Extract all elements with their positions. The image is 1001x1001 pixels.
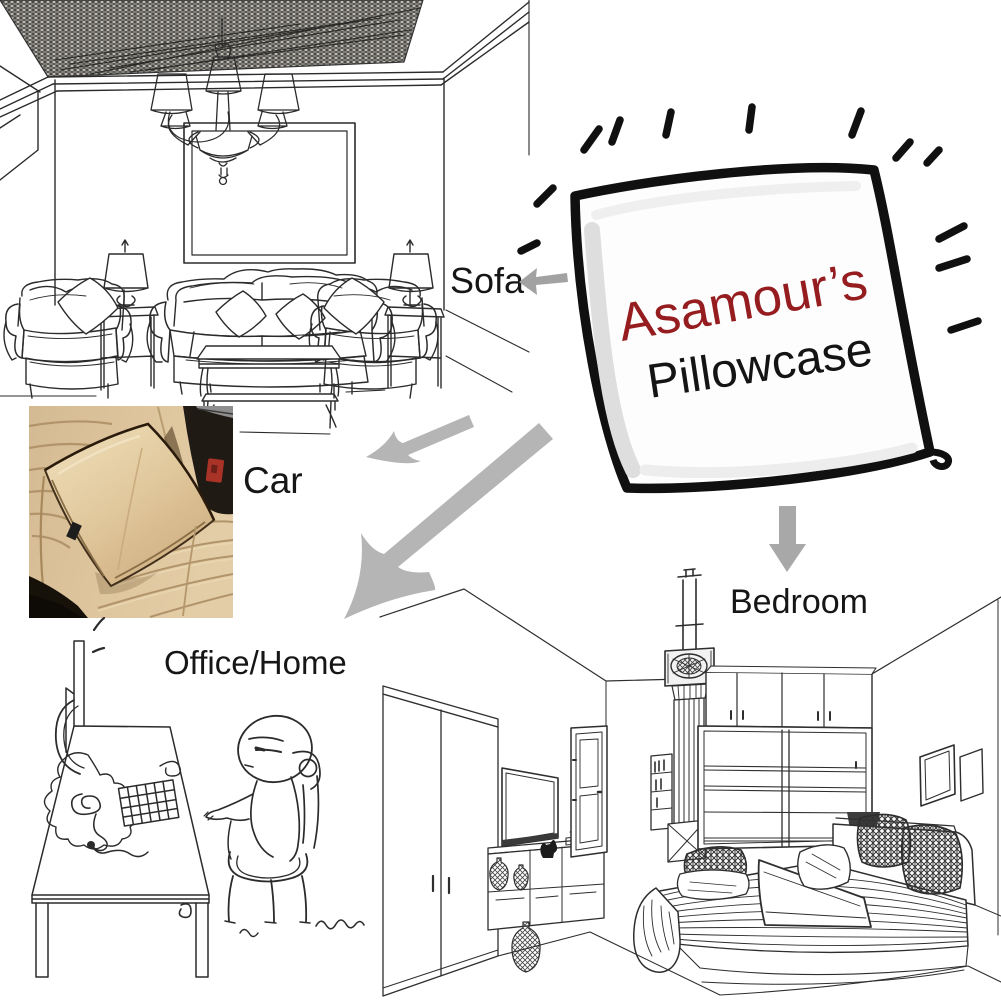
svg-text:Office/Home: Office/Home [164, 644, 347, 681]
svg-text:Car: Car [243, 460, 303, 501]
svg-text:Bedroom: Bedroom [730, 583, 868, 621]
svg-text:Sofa: Sofa [450, 260, 525, 301]
